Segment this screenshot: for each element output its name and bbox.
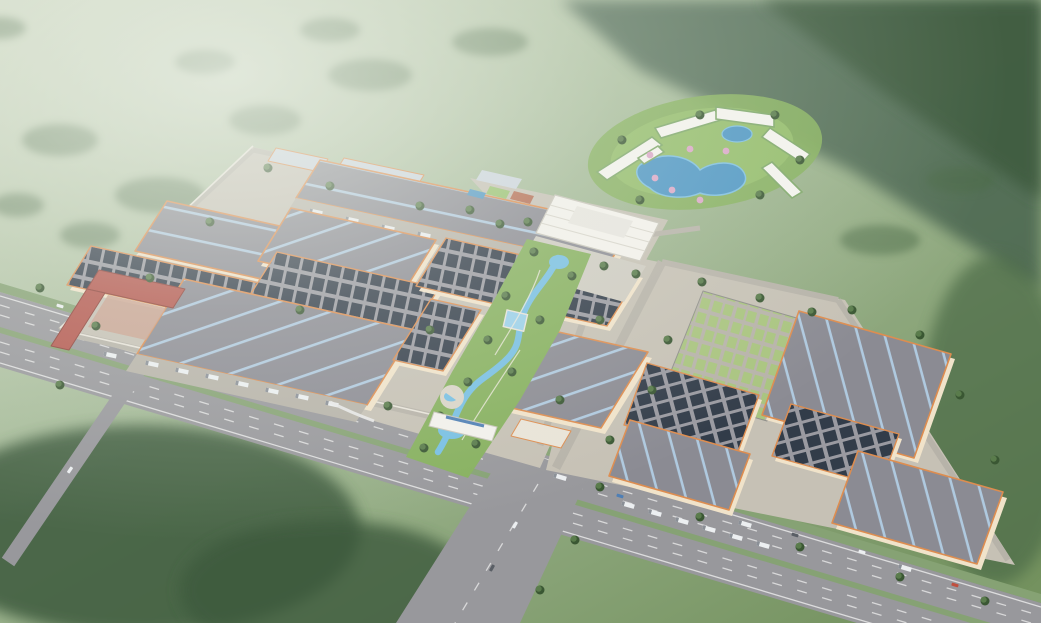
aerial-rendering: Bird's-eye master-plan rendering of a la…: [0, 0, 1041, 623]
industrial-park-rendering: Bird's-eye master-plan rendering of a la…: [0, 0, 1041, 623]
atmospheric-haze: [0, 0, 1041, 623]
